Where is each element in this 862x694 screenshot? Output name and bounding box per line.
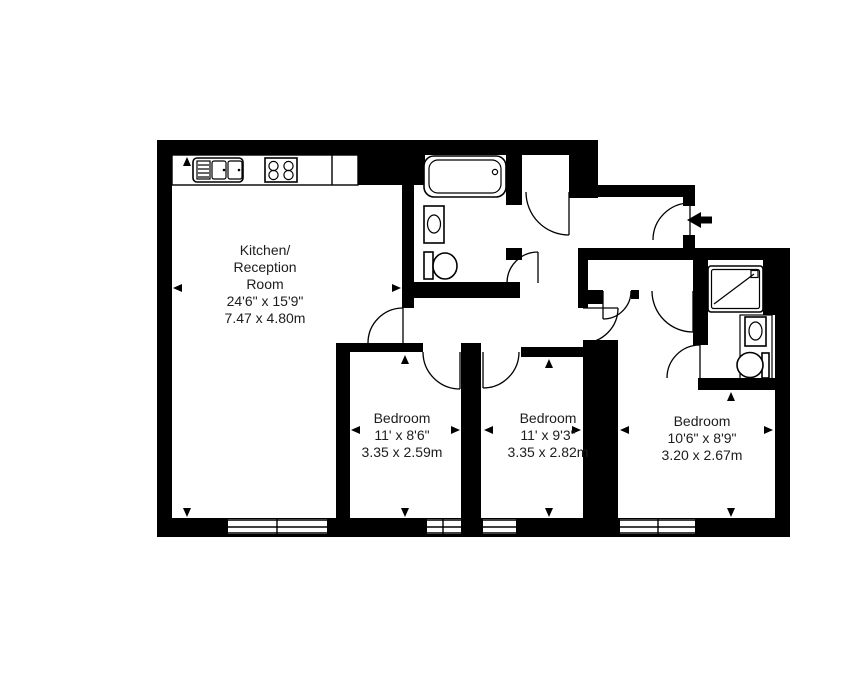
bedroom3-name: Bedroom bbox=[674, 413, 731, 429]
basin-icon bbox=[424, 206, 444, 243]
showerroom-fixtures bbox=[708, 266, 772, 384]
bedroom3-dims-imperial: 10'6" x 8'9" bbox=[668, 430, 737, 446]
kitchen-corridor-door bbox=[368, 308, 403, 343]
tick-bedroom3-down bbox=[727, 508, 735, 517]
tick-bedroom1-left bbox=[351, 426, 360, 434]
tick-bedroom3-up bbox=[727, 392, 735, 401]
bedroom1-dims-imperial: 11' x 8'6" bbox=[374, 427, 429, 443]
shower-tray-icon bbox=[708, 266, 763, 312]
bathroom1-fixtures bbox=[424, 156, 506, 279]
floorplan-drawing: Kitchen/ Reception Room 24'6" x 15'9" 7.… bbox=[0, 0, 862, 694]
tick-kitchen-down bbox=[183, 508, 191, 517]
label-kitchen-reception: Kitchen/ Reception Room 24'6" x 15'9" 7.… bbox=[225, 242, 306, 326]
bath-icon bbox=[424, 156, 506, 197]
wall-entry-jamb-lower bbox=[683, 235, 695, 250]
bedroom2-door bbox=[483, 352, 519, 388]
wall-entry-lower bbox=[578, 248, 695, 260]
bedroom2-dims-imperial: 11' x 9'3" bbox=[520, 427, 575, 443]
bedroom1-dims-metric: 3.35 x 2.59m bbox=[362, 444, 443, 460]
kitchen-name-line2: Reception bbox=[233, 259, 296, 275]
bedroom2-name: Bedroom bbox=[520, 410, 577, 426]
kitchen-dims-imperial: 24'6" x 15'9" bbox=[227, 293, 304, 309]
tick-bedroom2-down bbox=[545, 508, 553, 517]
entry-arrow-icon bbox=[687, 212, 712, 228]
toilet-icon bbox=[424, 252, 457, 279]
wall-bedroom2-3-divider bbox=[583, 340, 618, 537]
wall-left bbox=[157, 140, 172, 537]
wall-closet-west bbox=[578, 248, 588, 308]
bedroom2-dims-metric: 3.35 x 2.82m bbox=[508, 444, 589, 460]
tick-bedroom2-up bbox=[545, 359, 553, 368]
floorplan-page: Kitchen/ Reception Room 24'6" x 15'9" 7.… bbox=[0, 0, 862, 694]
label-bedroom2: Bedroom 11' x 9'3" 3.35 x 2.82m bbox=[508, 410, 589, 460]
bedroom1-door bbox=[423, 352, 460, 389]
label-bedroom3: Bedroom 10'6" x 8'9" 3.20 x 2.67m bbox=[662, 413, 743, 463]
corridor-vestibule-door bbox=[583, 308, 618, 343]
tick-bedroom1-up bbox=[401, 355, 409, 364]
wall-bathroom-bottom bbox=[402, 282, 520, 298]
wardrobe-door-left bbox=[603, 291, 631, 319]
kitchen-name-line1: Kitchen/ bbox=[240, 242, 291, 258]
tick-bedroom2-left bbox=[484, 426, 493, 434]
lobby-door-upper bbox=[526, 192, 569, 235]
wall-closet-jamb-mid bbox=[631, 290, 639, 299]
tick-bedroom3-left bbox=[620, 426, 629, 434]
window-bedroom2 bbox=[483, 519, 516, 534]
basin-icon-2 bbox=[745, 317, 766, 346]
wall-bathroom-east bbox=[506, 140, 522, 205]
entry-door bbox=[653, 203, 690, 240]
kitchen-sink-icon bbox=[193, 158, 243, 182]
tick-bedroom1-down bbox=[401, 508, 409, 517]
window-bedroom3 bbox=[620, 519, 695, 534]
window-kitchen bbox=[228, 519, 327, 534]
wall-bath-chunk bbox=[352, 140, 425, 185]
wall-bedroom2-top bbox=[521, 347, 583, 357]
bedroom1-name: Bedroom bbox=[374, 410, 431, 426]
tick-bedroom1-right bbox=[451, 426, 460, 434]
wall-bedroom1-2-divider bbox=[461, 343, 481, 528]
wall-shower-east-chunk bbox=[763, 260, 790, 315]
window-bedroom1 bbox=[427, 519, 461, 534]
bedroom3-dims-metric: 3.20 x 2.67m bbox=[662, 447, 743, 463]
wardrobe-door-right bbox=[652, 291, 693, 332]
label-bedroom1: Bedroom 11' x 8'6" 3.35 x 2.59m bbox=[362, 410, 443, 460]
tick-bedroom3-right bbox=[764, 426, 773, 434]
kitchen-dims-metric: 7.47 x 4.80m bbox=[225, 310, 306, 326]
showerroom-door bbox=[667, 345, 700, 378]
wall-closet-jamb-west bbox=[588, 290, 603, 304]
tick-kitchen-left bbox=[173, 284, 182, 292]
toilet-icon-2 bbox=[737, 353, 769, 379]
kitchen-counter bbox=[172, 155, 358, 185]
wall-entry-upper bbox=[569, 185, 695, 197]
hob-icon bbox=[265, 158, 297, 182]
wall-entry-jamb-upper bbox=[683, 197, 695, 206]
tick-kitchen-right bbox=[392, 284, 401, 292]
wall-kitchen-bedroom1-divider bbox=[336, 343, 350, 537]
walls bbox=[157, 140, 790, 537]
kitchen-name-line3: Room bbox=[246, 276, 283, 292]
wall-shower-west bbox=[693, 260, 708, 345]
